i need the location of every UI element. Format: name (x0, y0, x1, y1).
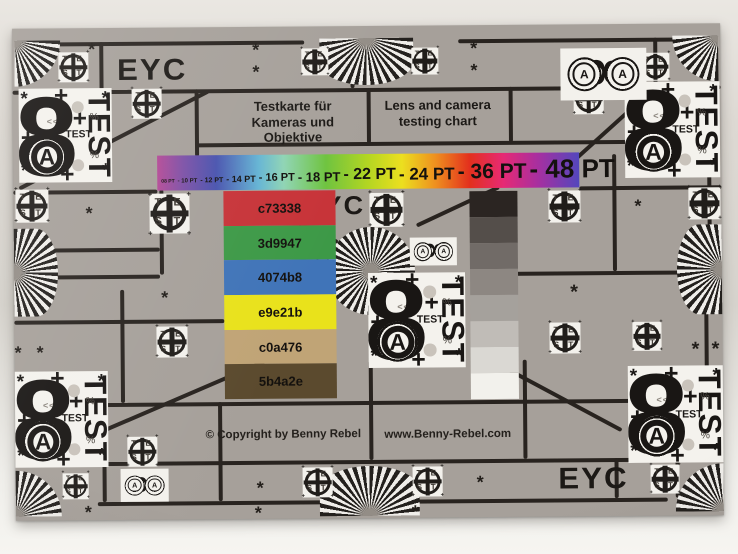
pt-size-label: - 48 PT (529, 155, 614, 188)
test-logo-block: * * * * + + + + <<< vvv 8 A TEST TEST % … (368, 272, 466, 368)
plus-mark: + (155, 354, 158, 360)
crosshair-letter: E (431, 469, 436, 477)
crosshair-letter: S (307, 485, 312, 493)
crosshair-letter: T (78, 488, 82, 495)
plus-mark: + (578, 188, 582, 194)
test-logo-block: * * * * + + + + <<< vvv 8 A TEST TEST % … (19, 88, 113, 183)
grayscale-step (470, 217, 518, 243)
grayscale-step (471, 373, 519, 399)
crosshair-letter: T (145, 454, 150, 462)
circled-a-badge: A (567, 57, 601, 91)
grid-line (42, 40, 304, 46)
crosshair-letter: S (578, 101, 583, 109)
crosshair-letter: T (135, 91, 140, 99)
plus-mark: + (301, 465, 304, 471)
plus-mark: + (326, 46, 329, 51)
crosshair-letter: T (174, 216, 181, 227)
pt-size-label: - 16 PT (259, 173, 295, 190)
small-test-label: TEST (65, 130, 91, 141)
plus-mark: + (660, 347, 663, 353)
crosshair-letter: T (321, 484, 326, 492)
crosshair-letter: E (35, 193, 41, 202)
pt-size-label: - 10 PT (178, 178, 198, 190)
crosshair-letter: T (553, 325, 558, 333)
plus-mark: + (14, 187, 18, 193)
crosshair-letter: T (693, 190, 698, 199)
crosshair-letter: S (553, 209, 559, 218)
title-german: Testkarte für Kameras und Objektive (223, 98, 363, 146)
plus-mark: + (401, 223, 405, 229)
plus-mark: + (718, 185, 722, 191)
plus-mark: + (330, 465, 333, 471)
grid-line (458, 37, 702, 43)
crosshair-target-icon: + + + + T E S T (413, 466, 443, 496)
crosshair-target-icon: + + + + T E S T (651, 465, 680, 494)
crosshair-letter: E (650, 324, 655, 332)
crosshair-letter: E (145, 439, 150, 447)
asterisk-mark: * (570, 282, 578, 302)
crosshair-letter: S (693, 206, 699, 215)
siemens-star-pattern (672, 35, 718, 81)
crosshair-target-icon: + + + + T E S T (411, 47, 438, 74)
crosshair-letter: E (708, 190, 714, 199)
percent-mark: % (86, 435, 95, 446)
swatch-hex-label: 5b4a2e (259, 374, 303, 389)
grid-line (54, 248, 160, 253)
plus-mark: + (548, 350, 551, 356)
plus-mark: + (300, 73, 303, 78)
plus-mark: + (441, 493, 444, 499)
crosshair-target-icon: + + + + T E S T (127, 437, 157, 467)
test-logo-block: * * * * + + + + <<< vvv 8 A TEST TEST % … (15, 371, 109, 468)
asterisk-mark: * (470, 61, 477, 79)
siemens-star-pattern (16, 470, 62, 516)
crosshair-target-icon: + + + + T E S T (548, 190, 580, 222)
crosshair-letter: T (650, 338, 655, 346)
crosshair-letter: T (20, 193, 26, 202)
crosshair-letter: E (658, 55, 663, 63)
crosshair-letter: E (668, 467, 673, 475)
pt-size-label: - 36 PT (458, 161, 527, 189)
plus-mark: + (57, 79, 60, 85)
crosshair-letter: T (374, 196, 380, 205)
mini-eight-block: 8 A A (121, 469, 169, 502)
plus-mark: + (631, 348, 634, 354)
plus-mark: + (548, 320, 551, 326)
percent-mark: % (442, 297, 451, 308)
siemens-star-pattern (14, 40, 60, 86)
plus-mark: + (436, 45, 439, 50)
desk-surface: + + + + T E S T + + + + T E S T + + + + … (0, 0, 738, 554)
crosshair-letter: E (321, 470, 326, 478)
crosshair-letter: S (554, 340, 560, 348)
asterisk-mark: * (257, 479, 264, 497)
crosshair-target-icon: + + + + T E S T (132, 89, 162, 119)
crosshair-letter: E (390, 196, 396, 205)
crosshair-letter: S (636, 338, 641, 346)
grayscale-step (470, 243, 518, 269)
mini-eight-block: 8 A A (560, 48, 646, 101)
crosshair-target-icon: + + + + T E S T (301, 48, 328, 75)
crosshair-letter: T (592, 101, 597, 109)
swatch-hex-label: 4074b8 (258, 270, 302, 285)
plus-mark: + (126, 434, 129, 440)
plus-mark: + (410, 45, 413, 50)
plus-mark: + (62, 471, 65, 476)
color-swatch: 4074b8 (224, 260, 336, 296)
plus-mark: + (578, 350, 581, 356)
crosshair-letter: S (374, 212, 380, 221)
crosshair-letter: S (417, 484, 422, 492)
plus-mark: + (46, 219, 50, 225)
asterisk-mark: * (470, 39, 477, 57)
crosshair-letter: T (76, 69, 81, 77)
percent-mark: % (90, 113, 99, 124)
asterisk-mark: * (692, 339, 700, 359)
crosshair-letter: T (568, 209, 573, 218)
crosshair-letter: T (553, 193, 558, 202)
plus-mark: + (331, 494, 334, 500)
plus-mark: + (368, 190, 372, 196)
crosshair-letter: T (654, 467, 659, 475)
eyc-label: EYC (558, 464, 629, 495)
plus-mark: + (602, 111, 605, 117)
crosshair-target-icon: + + + + T E S T (15, 190, 48, 223)
plus-mark: + (57, 50, 60, 56)
website-text: www.Benny-Rebel.com (375, 428, 520, 441)
eyc-label: EYC (117, 55, 188, 86)
plus-mark: + (87, 496, 90, 501)
plus-mark: + (687, 185, 691, 191)
circled-a-badge: A (605, 57, 639, 91)
crosshair-target-icon: + + + + T E S T (149, 193, 189, 233)
copyright-text: © Copyright by Benny Rebel (201, 428, 365, 441)
plus-mark: + (160, 115, 163, 121)
asterisk-mark: * (88, 40, 95, 58)
crosshair-letter: E (568, 193, 574, 202)
crosshair-letter: S (654, 481, 659, 489)
plus-mark: + (410, 72, 413, 77)
percent-mark: % (697, 144, 706, 156)
crosshair-letter: E (568, 325, 574, 333)
crosshair-letter: S (415, 63, 420, 70)
crosshair-letter: E (427, 50, 432, 57)
grayscale-step (470, 321, 518, 347)
plus-mark: + (631, 320, 634, 326)
crosshair-letter: T (668, 481, 673, 489)
plus-mark: + (131, 116, 134, 122)
circled-a-badge: A (414, 242, 433, 261)
plus-mark: + (185, 354, 188, 360)
crosshair-letter: T (150, 106, 155, 114)
asterisk-mark: * (412, 503, 419, 521)
rainbow-scale-bar: 08 PT- 10 PT- 12 PT- 14 PT- 16 PT- 18 PT… (157, 152, 579, 190)
asterisk-mark: * (161, 289, 168, 307)
siemens-star-pattern (677, 224, 723, 314)
grayscale-wedge (469, 191, 519, 399)
asterisk-mark: * (634, 197, 641, 215)
plus-mark: + (687, 216, 691, 222)
plus-mark: + (412, 493, 415, 499)
crosshair-letter: S (136, 106, 141, 114)
percent-mark: % (700, 391, 709, 403)
plus-mark: + (86, 79, 89, 85)
asterisk-mark: * (252, 41, 259, 59)
small-test-label: TEST (417, 314, 444, 325)
crosshair-target-icon: + + + + T E S T (632, 322, 661, 351)
small-test-label: TEST (672, 124, 699, 136)
plus-mark: + (678, 490, 681, 496)
asterisk-mark: * (252, 63, 259, 81)
plus-mark: + (185, 324, 188, 330)
crosshair-target-icon: + + + + T E S T (156, 326, 187, 357)
crosshair-letter: T (568, 340, 573, 348)
crosshair-letter: T (658, 69, 663, 77)
crosshair-letter: S (131, 454, 136, 462)
asterisk-mark: * (37, 344, 44, 362)
percent-mark: % (90, 150, 99, 161)
crosshair-letter: E (317, 51, 322, 58)
plus-mark: + (302, 494, 305, 500)
crosshair-letter: T (305, 51, 310, 58)
asterisk-mark: * (255, 504, 262, 522)
pt-size-label: 08 PT (161, 180, 174, 191)
grayscale-step (469, 191, 517, 217)
plus-mark: + (659, 319, 662, 325)
grid-line (218, 402, 223, 501)
swatch-hex-label: c73338 (258, 200, 302, 215)
crosshair-target-icon: + + + + T E S T (369, 193, 403, 227)
plus-mark: + (578, 320, 581, 326)
crosshair-letter: T (318, 64, 323, 71)
circled-a-badge: A (434, 242, 453, 261)
pt-size-label: - 22 PT (343, 167, 396, 189)
crosshair-letter: T (160, 329, 165, 337)
plus-mark: + (368, 223, 372, 229)
crosshair-letter: E (150, 91, 155, 99)
crosshair-target-icon: + + + + T E S T (303, 467, 333, 497)
plus-mark: + (300, 46, 303, 51)
crosshair-letter: T (175, 344, 180, 352)
crosshair-letter: T (62, 55, 67, 63)
color-swatch: 5b4a2e (225, 364, 337, 400)
plus-mark: + (46, 187, 50, 193)
grid-line (490, 270, 692, 276)
title-english: Lens and camera testing chart (373, 97, 503, 129)
small-test-label: TEST (62, 413, 89, 424)
crosshair-target-icon: + + + + T E S T (58, 52, 88, 82)
crosshair-letter: E (78, 476, 83, 483)
plus-mark: + (649, 462, 652, 468)
plus-mark: + (677, 462, 680, 468)
pt-size-label: - 12 PT (200, 177, 223, 190)
test-logo-block: * * * * + + + + <<< vvv 8 A TEST TEST % … (628, 365, 724, 463)
crosshair-letter: E (173, 197, 180, 208)
crosshair-letter: T (390, 212, 396, 221)
crosshair-letter: T (155, 197, 162, 208)
siemens-star-pattern (14, 228, 59, 316)
grid-line (120, 290, 125, 403)
grayscale-step (471, 347, 519, 373)
crosshair-letter: T (415, 50, 420, 57)
crosshair-letter: T (66, 476, 70, 483)
percent-mark: % (443, 335, 452, 346)
circled-a-badge: A (144, 475, 165, 496)
crosshair-letter: S (305, 64, 310, 71)
plus-mark: + (155, 324, 158, 330)
color-swatch: c73338 (223, 190, 335, 226)
grid-line (99, 42, 103, 90)
plus-mark: + (130, 86, 133, 92)
crosshair-letter: S (66, 488, 71, 495)
pt-size-label: - 14 PT (226, 175, 256, 190)
plus-mark: + (159, 86, 162, 92)
plus-mark: + (573, 111, 576, 117)
plus-mark: + (187, 190, 191, 198)
plus-mark: + (650, 491, 653, 497)
crosshair-letter: T (35, 208, 41, 217)
siemens-star-pattern (676, 463, 724, 511)
grayscale-step (470, 269, 518, 295)
crosshair-letter: E (175, 329, 181, 337)
crosshair-letter: S (155, 216, 162, 227)
grayscale-step (470, 295, 518, 321)
plus-mark: + (718, 216, 722, 222)
asterisk-mark: * (712, 339, 720, 359)
plus-mark: + (547, 219, 551, 225)
swatch-hex-label: 3d9947 (258, 235, 302, 250)
crosshair-target-icon: + + + + T E S T (63, 473, 89, 499)
siemens-star-pattern (319, 38, 413, 86)
plus-mark: + (87, 471, 90, 476)
percent-mark: % (701, 429, 710, 441)
grid-line (509, 87, 513, 142)
plus-mark: + (187, 229, 191, 237)
plus-mark: + (155, 434, 158, 440)
color-swatch: c0a476 (224, 329, 336, 365)
siemens-star-pattern (320, 466, 420, 517)
color-swatch: 3d9947 (224, 225, 336, 261)
crosshair-letter: T (306, 470, 311, 478)
color-swatch-column: c733383d99474074b8e9e21bc0a4765b4a2e (223, 190, 337, 399)
plus-mark: + (440, 464, 443, 470)
grid-line (367, 88, 371, 143)
color-swatch: e9e21b (224, 294, 336, 330)
swatch-hex-label: e9e21b (258, 304, 302, 319)
small-test-label: TEST (676, 408, 703, 420)
asterisk-mark: * (15, 344, 22, 362)
plus-mark: + (547, 188, 551, 194)
mini-eight-block: 8 A A (410, 237, 457, 265)
plus-mark: + (401, 190, 405, 196)
crosshair-letter: T (708, 206, 713, 215)
asterisk-mark: * (477, 473, 484, 491)
test-chart-sheet: + + + + T E S T + + + + T E S T + + + + … (12, 23, 724, 521)
crosshair-letter: T (416, 469, 421, 477)
crosshair-letter: T (131, 440, 136, 448)
plus-mark: + (327, 72, 330, 77)
percent-mark: % (697, 106, 706, 118)
plus-mark: + (437, 71, 440, 76)
crosshair-letter: S (62, 69, 67, 77)
swatch-hex-label: c0a476 (259, 339, 303, 354)
crosshair-target-icon: + + + + T E S T (549, 322, 580, 353)
plus-mark: + (578, 219, 582, 225)
asterisk-mark: * (85, 204, 92, 222)
crosshair-letter: T (428, 63, 433, 70)
plus-mark: + (14, 219, 18, 225)
grid-line (369, 361, 374, 460)
crosshair-letter: T (431, 484, 436, 492)
plus-mark: + (148, 191, 152, 199)
crosshair-target-icon: + + + + T E S T (688, 187, 720, 219)
percent-mark: % (86, 396, 95, 407)
crosshair-letter: E (76, 55, 81, 63)
crosshair-letter: S (20, 208, 26, 217)
plus-mark: + (148, 229, 152, 237)
plus-mark: + (667, 50, 670, 55)
pt-size-label: - 24 PT (399, 165, 455, 188)
crosshair-letter: S (161, 344, 167, 352)
pt-size-label: - 18 PT (298, 170, 341, 189)
plus-mark: + (62, 497, 65, 502)
asterisk-mark: * (85, 503, 92, 521)
crosshair-letter: T (636, 324, 641, 332)
plus-mark: + (411, 464, 414, 470)
